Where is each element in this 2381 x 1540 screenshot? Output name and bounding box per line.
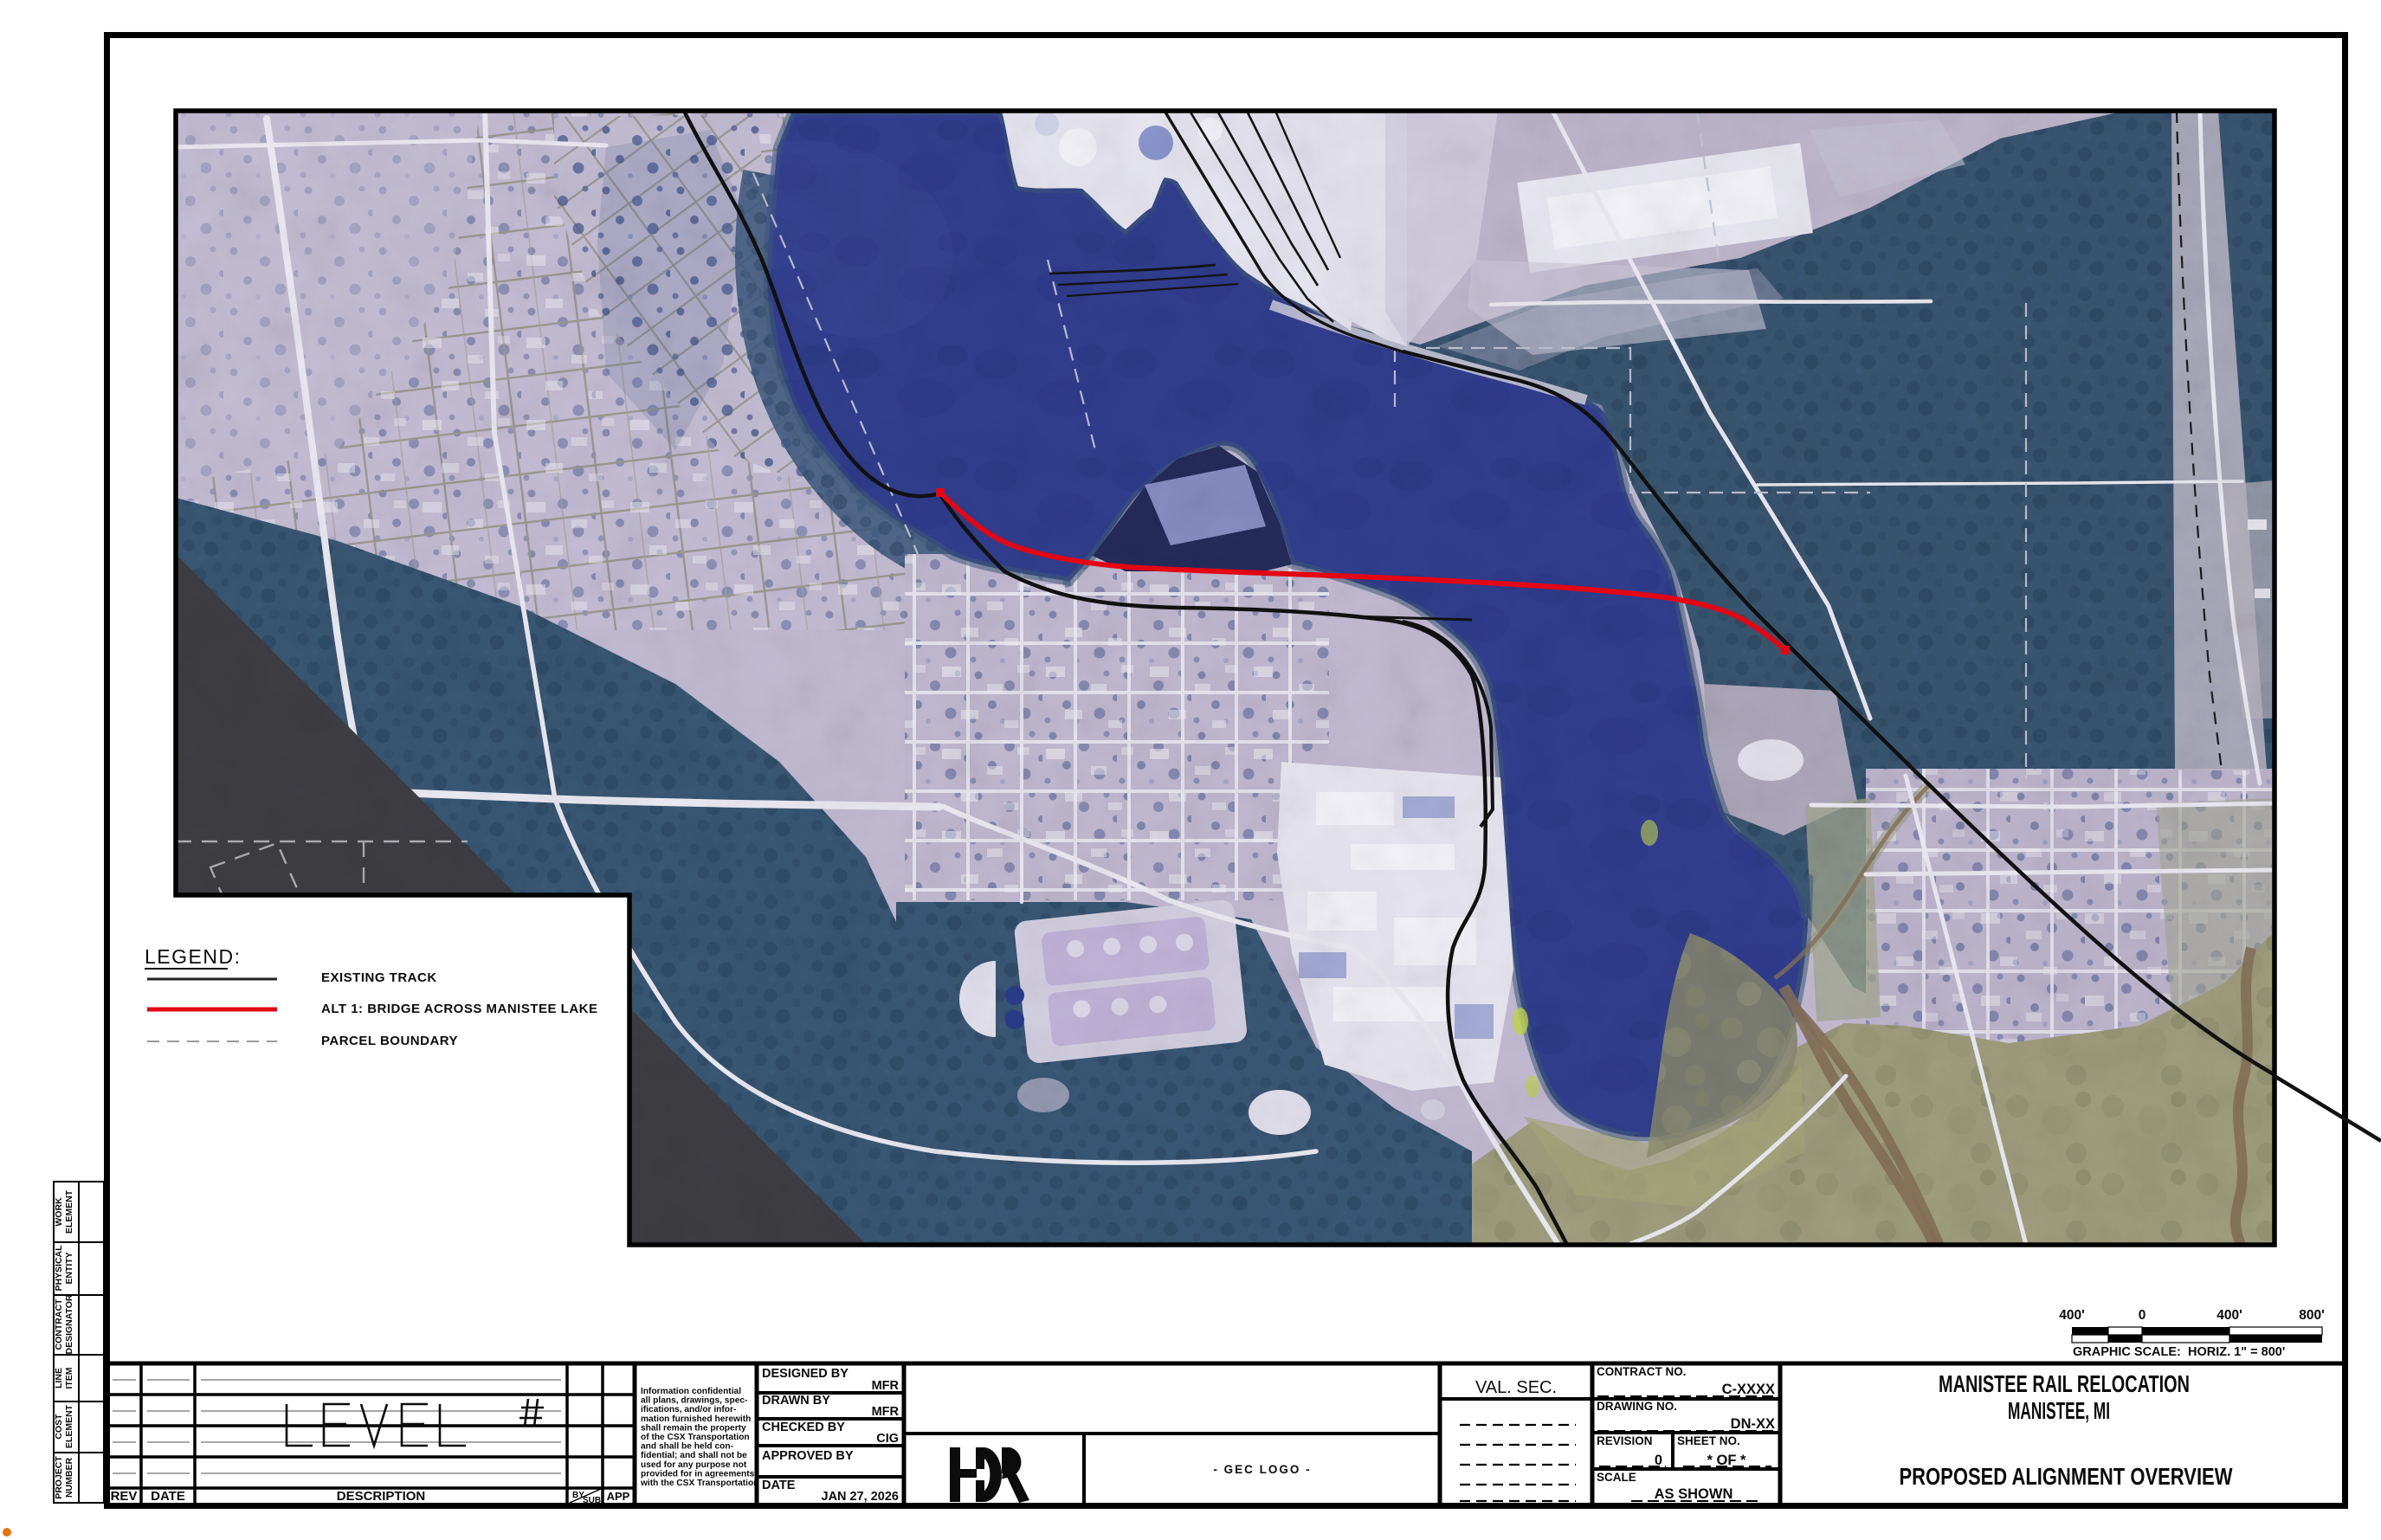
svg-text:DESCRIPTION: DESCRIPTION — [337, 1489, 426, 1504]
svg-text:PHYSICAL: PHYSICAL — [54, 1245, 64, 1292]
svg-text:APP: APP — [607, 1490, 630, 1503]
svg-text:DRAWING NO.: DRAWING NO. — [1597, 1400, 1677, 1413]
svg-text:provided for in agreements: provided for in agreements — [641, 1469, 755, 1479]
svg-text:SCALE: SCALE — [1597, 1471, 1636, 1484]
svg-text:DN-XX: DN-XX — [1731, 1416, 1775, 1432]
svg-text:used for any purpose not: used for any purpose not — [641, 1460, 747, 1470]
svg-text:CONTRACT: CONTRACT — [54, 1298, 64, 1350]
svg-text:400': 400' — [2216, 1308, 2242, 1323]
svg-text:JAN 27, 2026: JAN 27, 2026 — [822, 1490, 899, 1504]
svg-text:Information confidential: Information confidential — [641, 1387, 741, 1396]
svg-text:PARCEL BOUNDARY: PARCEL BOUNDARY — [321, 1034, 458, 1048]
svg-text:NUMBER: NUMBER — [64, 1458, 74, 1498]
svg-text:COST: COST — [54, 1414, 64, 1440]
svg-text:fidential; and shall not be: fidential; and shall not be — [641, 1451, 747, 1460]
svg-text:ELEMENT: ELEMENT — [64, 1189, 74, 1234]
svg-text:AS SHOWN: AS SHOWN — [1655, 1486, 1733, 1502]
svg-text:EXISTING TRACK: EXISTING TRACK — [321, 970, 437, 985]
svg-text:LINE: LINE — [54, 1368, 64, 1389]
svg-text:PROJECT: PROJECT — [54, 1456, 64, 1499]
svg-text:REVISION: REVISION — [1597, 1434, 1653, 1447]
svg-text:mation furnished herewith: mation furnished herewith — [641, 1414, 751, 1424]
svg-text:MANISTEE, MI: MANISTEE, MI — [2008, 1397, 2110, 1424]
svg-text:APPROVED BY: APPROVED BY — [762, 1449, 854, 1463]
svg-text:HORIZ. 1" = 800': HORIZ. 1" = 800' — [2188, 1345, 2285, 1359]
svg-text:SHEET NO.: SHEET NO. — [1677, 1434, 1740, 1447]
svg-text:800': 800' — [2299, 1308, 2325, 1323]
svg-text:with the CSX Transportation: with the CSX Transportation — [640, 1479, 758, 1488]
svg-text:MFR: MFR — [872, 1379, 900, 1393]
svg-text:and shall be held con-: and shall be held con- — [641, 1442, 733, 1452]
svg-text:MANISTEE RAIL RELOCATION: MANISTEE RAIL RELOCATION — [1939, 1370, 2190, 1397]
svg-text:DATE: DATE — [762, 1479, 796, 1492]
svg-text:DRAWN BY: DRAWN BY — [762, 1394, 830, 1408]
svg-text:ELEMENT: ELEMENT — [64, 1404, 74, 1448]
svg-text:VAL. SEC.: VAL. SEC. — [1475, 1378, 1557, 1397]
svg-text:shall remain the property: shall remain the property — [641, 1423, 746, 1433]
svg-text:ALT 1: BRIDGE ACROSS MANISTEE: ALT 1: BRIDGE ACROSS MANISTEE LAKE — [321, 1002, 598, 1016]
svg-text:REV: REV — [111, 1489, 138, 1504]
svg-text:- GEC LOGO -: - GEC LOGO - — [1213, 1463, 1311, 1476]
svg-text:DESIGNATOR: DESIGNATOR — [64, 1294, 74, 1354]
svg-text:ifications, and/or infor-: ifications, and/or infor- — [641, 1405, 736, 1414]
svg-text:DATE: DATE — [151, 1489, 185, 1504]
svg-text:CHECKED BY: CHECKED BY — [762, 1421, 845, 1434]
svg-text:MFR: MFR — [872, 1405, 900, 1419]
svg-text:GRAPHIC SCALE:: GRAPHIC SCALE: — [2073, 1345, 2181, 1359]
svg-text:400': 400' — [2059, 1308, 2085, 1323]
svg-text:DESIGNED BY: DESIGNED BY — [762, 1367, 849, 1381]
svg-text:ENTITY: ENTITY — [64, 1252, 74, 1284]
svg-text:0: 0 — [2139, 1308, 2146, 1323]
svg-text:PROPOSED ALIGNMENT OVERVIEW: PROPOSED ALIGNMENT OVERVIEW — [1900, 1463, 2233, 1490]
svg-text:of the CSX Transportation: of the CSX Transportation — [641, 1433, 750, 1442]
svg-text:CIG: CIG — [876, 1432, 899, 1446]
svg-text:LEGEND:: LEGEND: — [145, 945, 241, 968]
svg-text:CONTRACT NO.: CONTRACT NO. — [1597, 1365, 1687, 1378]
svg-text:WORK: WORK — [54, 1197, 64, 1227]
svg-text:all plans, drawings, spec-: all plans, drawings, spec- — [641, 1396, 747, 1406]
svg-text:C-XXXX: C-XXXX — [1722, 1382, 1775, 1397]
svg-text:SUB: SUB — [583, 1496, 601, 1505]
svg-text:ITEM: ITEM — [64, 1367, 74, 1389]
